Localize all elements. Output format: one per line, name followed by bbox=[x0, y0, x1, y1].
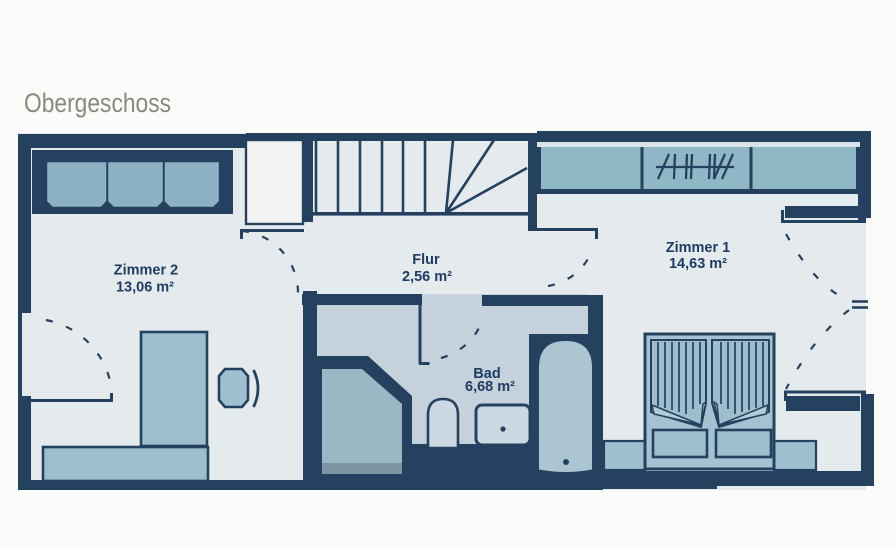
svg-text:Zimmer 2: Zimmer 2 bbox=[114, 263, 178, 279]
svg-text:14,63 m²: 14,63 m² bbox=[669, 256, 727, 272]
svg-text:6,68 m²: 6,68 m² bbox=[465, 379, 515, 395]
svg-text:Zimmer 1: Zimmer 1 bbox=[666, 240, 730, 256]
svg-text:Obergeschoss: Obergeschoss bbox=[24, 88, 171, 118]
svg-text:13,06 m²: 13,06 m² bbox=[116, 280, 174, 296]
svg-text:Flur: Flur bbox=[412, 252, 440, 268]
svg-text:2,56 m²: 2,56 m² bbox=[402, 269, 452, 285]
